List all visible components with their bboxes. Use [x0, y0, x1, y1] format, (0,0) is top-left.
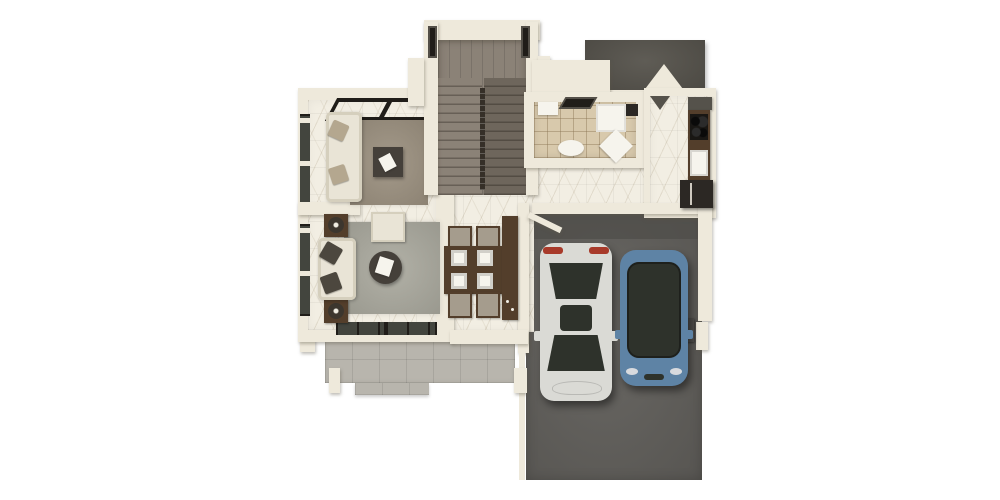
white-car-rear-window	[548, 263, 604, 299]
range-hood	[688, 97, 712, 110]
white-car-taillight-left	[543, 247, 563, 254]
shower-head-unit	[626, 104, 638, 116]
place-setting-3	[451, 273, 467, 289]
window-rear-left	[336, 322, 386, 335]
lamp-north	[328, 217, 344, 233]
white-car-sunroof	[560, 305, 592, 331]
kitchen-gable-shadow	[650, 96, 670, 110]
bathroom-sink	[538, 102, 558, 115]
sideboard	[502, 216, 518, 320]
white-car	[540, 243, 612, 401]
blue-car-mirror-left	[615, 330, 622, 339]
place-setting-1	[451, 250, 467, 266]
kitchen-sink	[690, 150, 708, 176]
stair-pillar-right	[521, 26, 530, 58]
window-lounge-upper	[300, 114, 310, 206]
blue-car-headlight-right	[670, 368, 682, 375]
armchair	[371, 212, 405, 242]
blue-car-headlight-left	[626, 368, 638, 375]
bathroom-vanity	[596, 104, 626, 132]
garage-east-wall	[698, 203, 712, 321]
sideboard-knob-2	[511, 308, 514, 311]
white-car-mirror-left	[534, 331, 542, 341]
window-rear-right	[386, 322, 437, 335]
place-setting-2	[477, 250, 493, 266]
patio-step	[355, 383, 429, 395]
place-setting-4	[477, 273, 493, 289]
patio-post-east	[514, 368, 527, 393]
stair-flight-left	[438, 78, 482, 195]
lamp-south	[328, 303, 344, 319]
blue-car-grille	[644, 374, 664, 380]
stair-railing	[480, 88, 485, 190]
fridge-handle	[690, 183, 692, 205]
blue-car-glass-canopy	[627, 262, 681, 358]
refrigerator	[680, 180, 713, 208]
stair-flight-right	[484, 78, 526, 195]
stair-pillar-left	[428, 26, 437, 58]
bathroom-north-structure	[532, 60, 610, 94]
window-lounge-lower	[300, 224, 310, 316]
garage-north-wall	[532, 203, 702, 214]
toilet	[558, 140, 584, 156]
white-car-windshield	[546, 335, 606, 371]
gate-post	[696, 322, 708, 350]
floor-plan-canvas	[0, 0, 1000, 500]
hall-south-wall	[450, 330, 528, 344]
cooktop	[690, 114, 708, 140]
white-car-taillight-right	[589, 247, 609, 254]
dining-chair-3	[448, 292, 472, 318]
entry-wall-stub-left	[408, 58, 424, 106]
sideboard-knob-1	[506, 300, 509, 303]
patio-post-west	[329, 368, 340, 393]
dining-chair-4	[476, 292, 500, 318]
white-car-hood-line	[552, 381, 602, 395]
blue-car	[620, 250, 688, 386]
blue-car-mirror-right	[686, 330, 693, 339]
